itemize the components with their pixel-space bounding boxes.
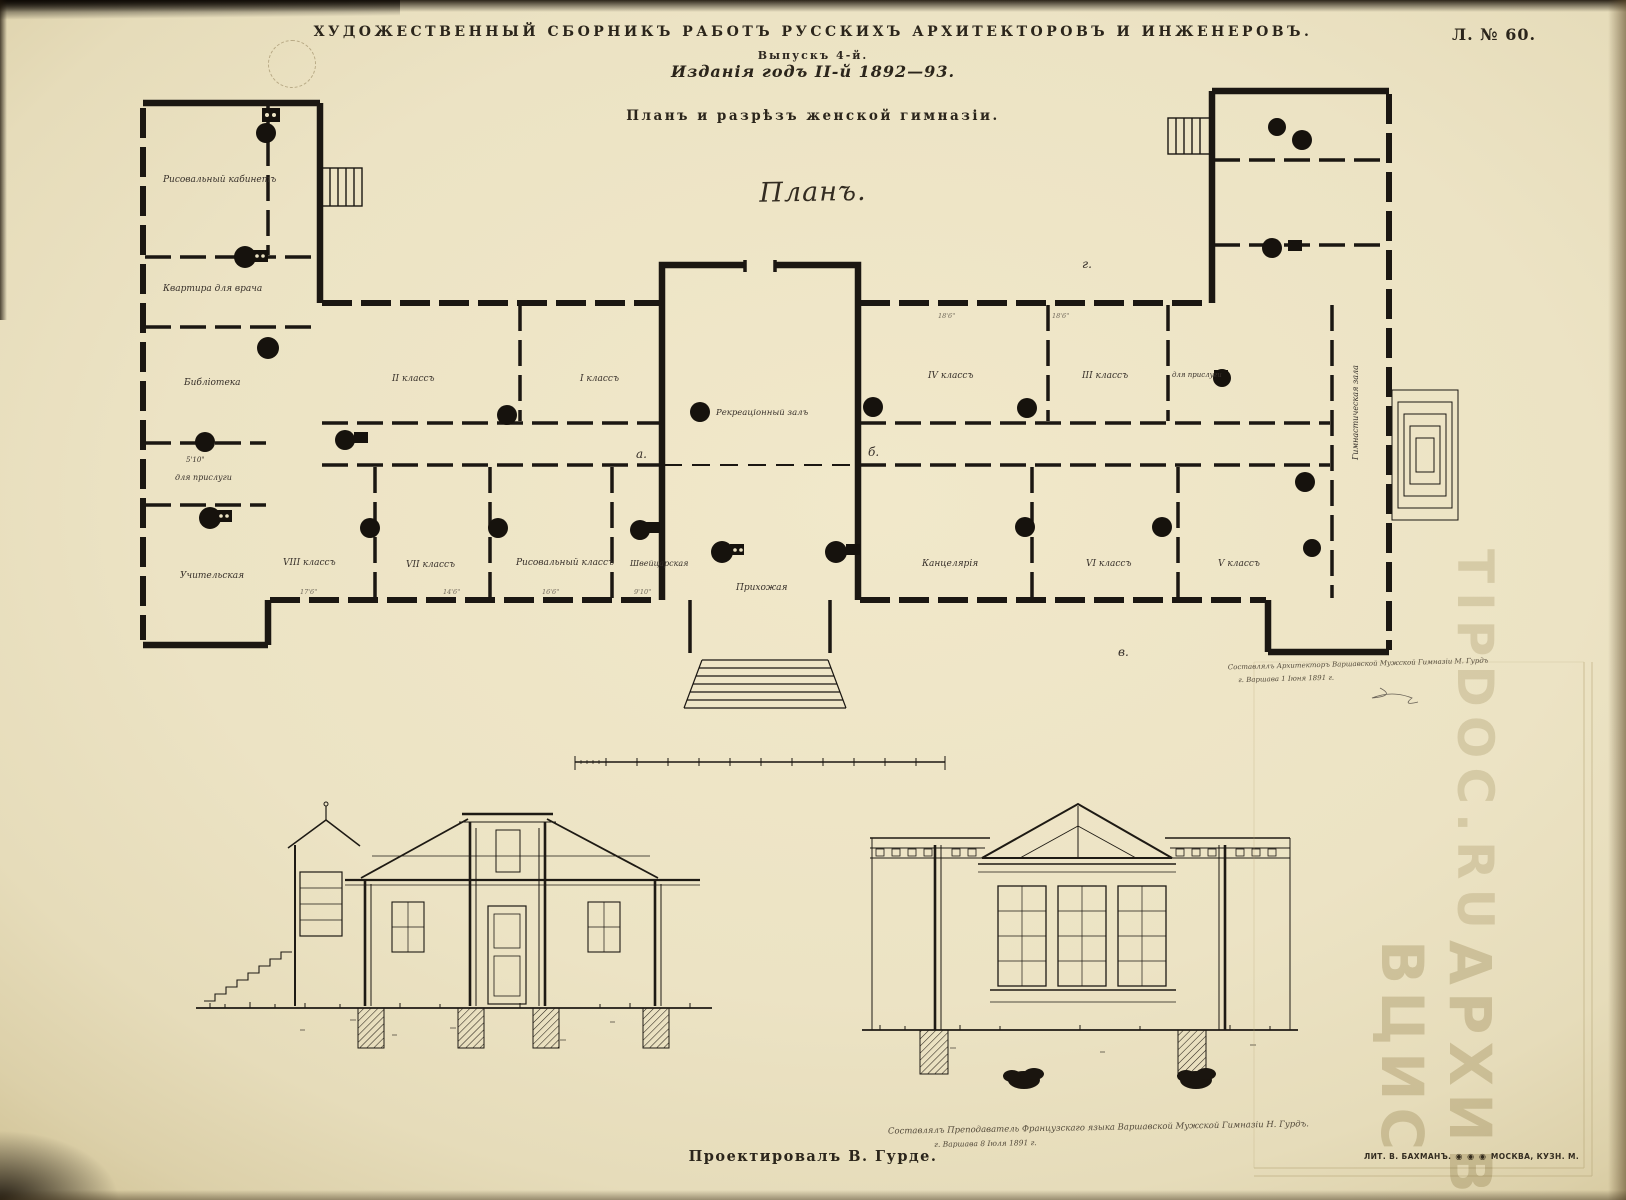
dim-d2: 14'6": [443, 588, 460, 596]
side-steps-right: [1392, 390, 1458, 520]
entrance-steps: [684, 660, 846, 708]
room-label-chancellery: Канцелярія: [921, 559, 978, 569]
room-label-entrance-hall: Прихожая: [735, 583, 787, 593]
medal-icons: ◉ ◉ ◉: [1455, 1152, 1487, 1161]
room-label-class5: V классъ: [1218, 559, 1260, 569]
scale-bar: [575, 756, 945, 770]
room-label-porter: Швейцарская: [629, 559, 688, 568]
room-label-drawing-class: Рисовальный классъ: [515, 558, 614, 568]
room-label-class6: VI классъ: [1086, 559, 1131, 569]
room-label-servants-right: для прислуги: [1172, 371, 1222, 379]
ground-bushes: [1003, 1068, 1216, 1089]
signature-flourish: [1372, 688, 1418, 703]
plan-partitions: [145, 105, 1387, 598]
room-label-class8: VIII классъ: [283, 558, 336, 568]
room-label-class7: VII классъ: [406, 560, 455, 570]
room-label-class4: IV классъ: [927, 371, 973, 381]
lithographer-imprint: ЛИТ. В. БАХМАНЪ. ◉ ◉ ◉ МОСКВА, КУЗН. М.: [1364, 1152, 1579, 1161]
stove-flues: [216, 108, 1302, 555]
room-label-teachers: Учительская: [180, 571, 244, 581]
stove-circles: [195, 118, 1321, 563]
dim-d6: 18'6": [1052, 312, 1069, 320]
room-label-doctor-flat: Квартира для врача: [162, 284, 262, 294]
stair-top-right: [1168, 118, 1210, 154]
scanned-plate-page: ХУДОЖЕСТВЕННЫЙ СБОРНИКЪ РАБОТЪ РУССКИХЪ …: [0, 0, 1626, 1200]
lithographer-city: МОСКВА, КУЗН. М.: [1491, 1152, 1579, 1161]
dim-label-small: 5'10": [186, 456, 205, 464]
cross-section-left: [196, 802, 712, 1048]
room-label-gym-hall: Гимнастическая зала: [1351, 365, 1360, 461]
room-label-class1: I классъ: [579, 374, 619, 384]
blind-stamp-frame: [1254, 662, 1592, 1176]
dim-d3: 16'6": [542, 588, 559, 596]
dim-d1: 17'6": [300, 588, 317, 596]
cross-section-right: [862, 804, 1298, 1089]
room-label-class3: III классъ: [1081, 371, 1128, 381]
lithograph-artwork: Рисовальный кабинетъ Квартира для врача …: [0, 0, 1626, 1200]
room-label-class2: II классъ: [391, 374, 435, 384]
dim-d4: 9'10": [634, 588, 651, 596]
room-label-drawing-cabinet: Рисовальный кабинетъ: [162, 174, 276, 185]
plan-marker-v: в.: [1118, 645, 1129, 659]
plan-marker-b: б.: [868, 445, 879, 459]
room-label-recreation-hall: Рекреаціонный залъ: [715, 408, 809, 418]
dim-d5: 18'6": [938, 312, 955, 320]
stair-top-left: [322, 168, 362, 206]
room-label-library: Библіотека: [183, 377, 241, 388]
plan-room-labels: Рисовальный кабинетъ Квартира для врача …: [162, 174, 1360, 659]
plan-vestibule-walls: [690, 260, 830, 653]
lithographer-name: ЛИТ. В. БАХМАНЪ.: [1364, 1152, 1451, 1161]
plan-marker-a: а.: [636, 447, 647, 461]
plan-marker-g: г.: [1082, 257, 1092, 271]
room-label-servants-left: для прислуги: [175, 473, 232, 482]
